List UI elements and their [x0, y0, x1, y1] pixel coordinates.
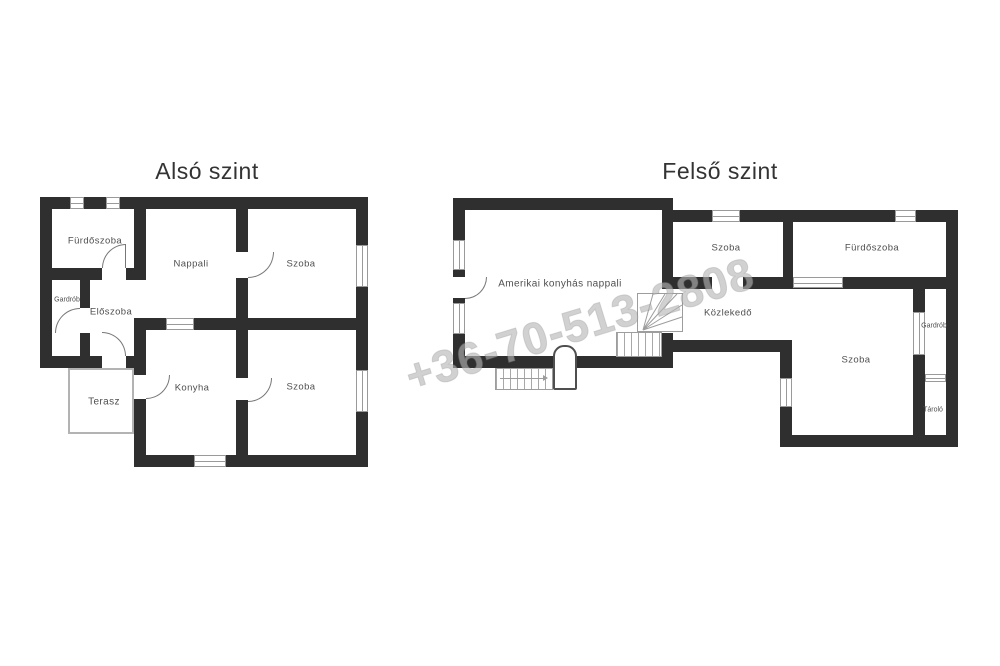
interior-window [166, 318, 194, 330]
door-arc [102, 244, 126, 268]
room-label-furdoszoba: Fürdőszoba [68, 236, 122, 247]
wall [453, 198, 673, 210]
interior-pass [793, 277, 843, 288]
stair-direction-arrow [543, 375, 548, 381]
window [194, 455, 226, 467]
door-opening [712, 277, 743, 289]
wall [662, 340, 792, 352]
stair-direction-line [500, 378, 543, 379]
room-label-eloszoba: Előszoba [90, 307, 132, 318]
room-label-gardrob-upper: Gardrób [921, 323, 947, 330]
entry-door [553, 345, 577, 390]
door-opening [80, 308, 90, 333]
window [356, 245, 368, 287]
door-arc [102, 332, 126, 356]
room-label-nappali: Nappali [173, 259, 208, 270]
door-opening [236, 378, 248, 400]
room-label-szoba-1: Szoba [287, 259, 316, 270]
room-label-amerikai-konyhas-nappali: Amerikai konyhás nappali [498, 279, 622, 290]
window [895, 210, 916, 222]
door-opening [102, 356, 126, 368]
wall [134, 209, 146, 280]
window [356, 370, 368, 412]
door-leaf [125, 244, 126, 268]
window [453, 240, 465, 270]
window [453, 303, 465, 334]
floor-plan-canvas: Alsó szint [0, 0, 1000, 666]
room-label-konyha: Konyha [175, 383, 210, 394]
room-label-tarolo: Tároló [923, 407, 943, 414]
door-arc [146, 375, 170, 399]
wall [946, 210, 958, 447]
wall [134, 455, 368, 467]
room-label-szoba-upper-2: Szoba [842, 355, 871, 366]
door-opening [236, 252, 248, 278]
divider [925, 374, 946, 382]
door-arc [248, 252, 274, 278]
door-opening [134, 375, 146, 399]
door-opening [453, 277, 465, 298]
interior-stairs [616, 332, 662, 357]
window [780, 378, 792, 407]
wall [40, 197, 52, 368]
room-label-szoba-upper-1: Szoba [712, 243, 741, 254]
wall [356, 197, 368, 467]
wall [236, 209, 248, 455]
wall [40, 268, 146, 280]
wall [40, 356, 146, 368]
room-label-szoba-2: Szoba [287, 382, 316, 393]
door-arc [248, 378, 272, 402]
room-label-furdoszoba-upper: Fürdőszoba [845, 243, 899, 254]
door-opening [102, 268, 126, 280]
door-arc [55, 308, 80, 333]
wall [40, 197, 368, 209]
room-label-gardrob: Gardrób [54, 297, 80, 304]
room-label-kozlekedo: Közlekedő [704, 308, 752, 319]
floor-title-lower: Alsó szint [47, 158, 367, 185]
door-arc [465, 277, 487, 299]
floor-title-upper: Felső szint [560, 158, 880, 185]
room-label-terasz: Terasz [88, 397, 120, 408]
winder-stairs [637, 293, 683, 332]
window [106, 197, 120, 209]
wall [780, 435, 958, 447]
sliding-door [913, 312, 925, 355]
window [712, 210, 740, 222]
window [70, 197, 84, 209]
